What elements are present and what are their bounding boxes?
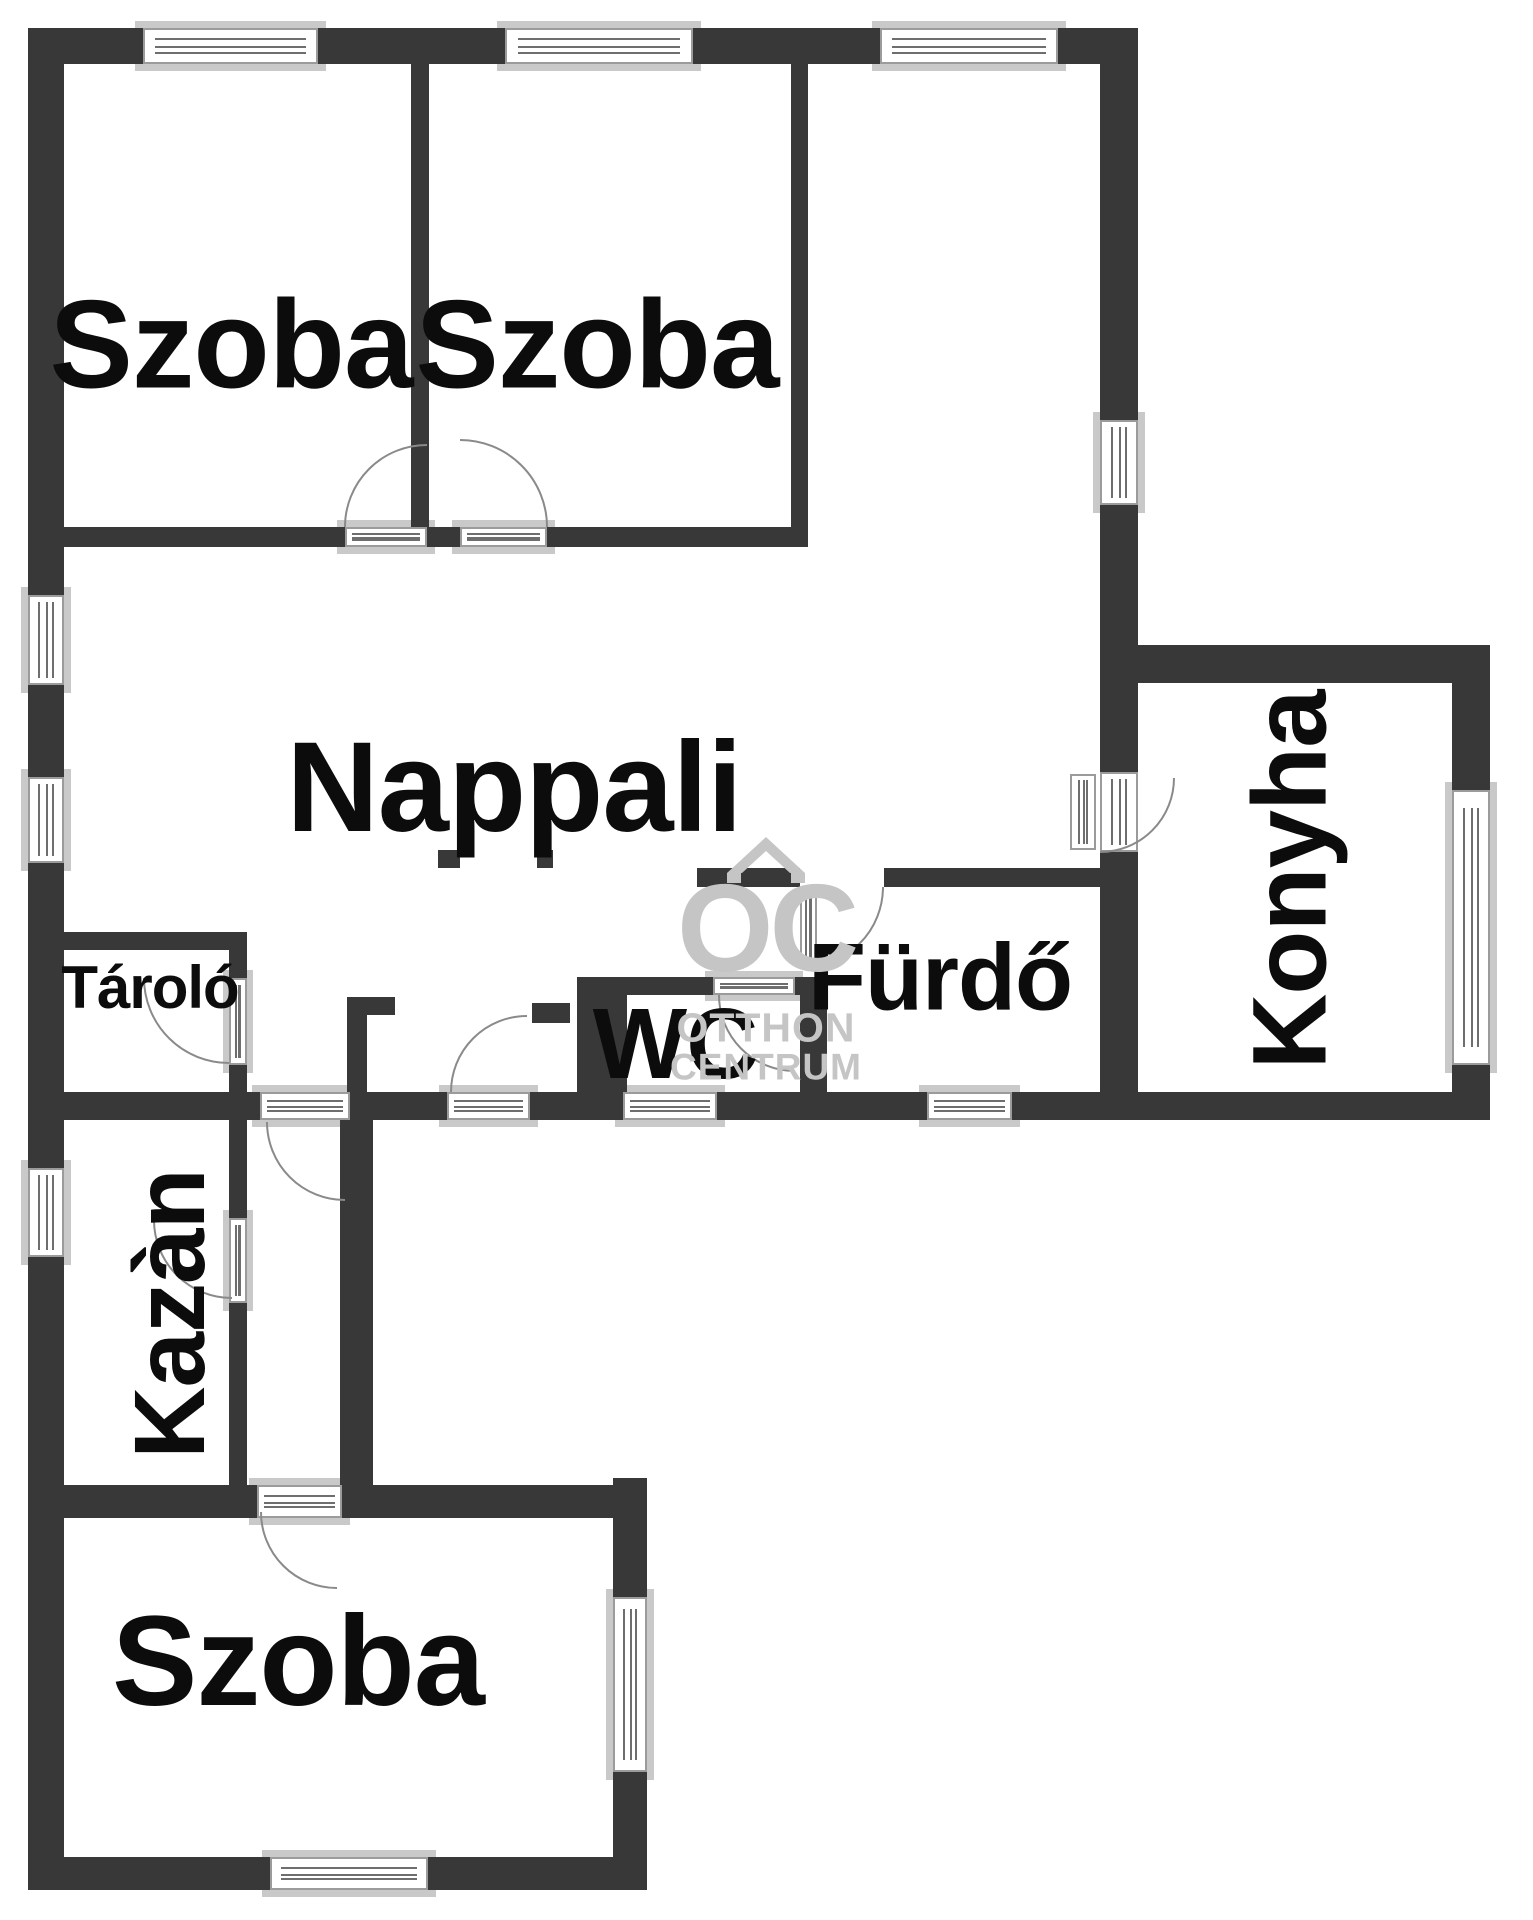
watermark-line2: CENTRUM [670,1049,862,1086]
watermark-monogram: OC [677,867,855,991]
room-label-nappali: Nappali [286,724,741,852]
room-label-tarolo: Tároló [61,958,238,1018]
room-label-szoba-top-mid: Szoba [415,283,778,408]
watermark-line1: OTTHON [676,1008,855,1049]
floor-plan: Szoba Szoba Nappali Tároló WC Fürdő Kony… [0,0,1533,1920]
room-label-szoba-top-left: Szoba [49,283,412,408]
room-label-szoba-bottom: Szoba [112,1598,484,1726]
room-label-kazan: Kazàn [120,1169,220,1459]
room-label-konyha: Konyha [1238,690,1343,1069]
